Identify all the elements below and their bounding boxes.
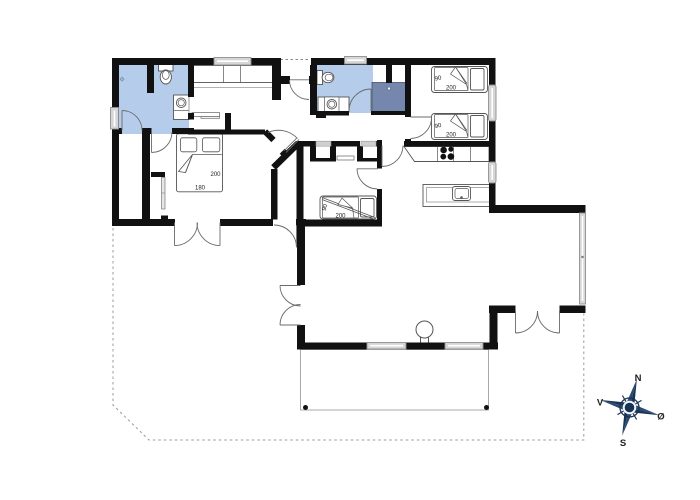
- svg-text:N: N: [635, 373, 642, 384]
- svg-text:200: 200: [446, 86, 457, 92]
- svg-text:200: 200: [210, 172, 221, 178]
- svg-text:S: S: [620, 438, 626, 449]
- svg-text:200: 200: [446, 133, 457, 139]
- svg-text:180: 180: [195, 186, 206, 192]
- svg-text:200: 200: [335, 214, 346, 220]
- svg-text:V: V: [597, 398, 604, 409]
- svg-text:Ø: Ø: [657, 412, 664, 423]
